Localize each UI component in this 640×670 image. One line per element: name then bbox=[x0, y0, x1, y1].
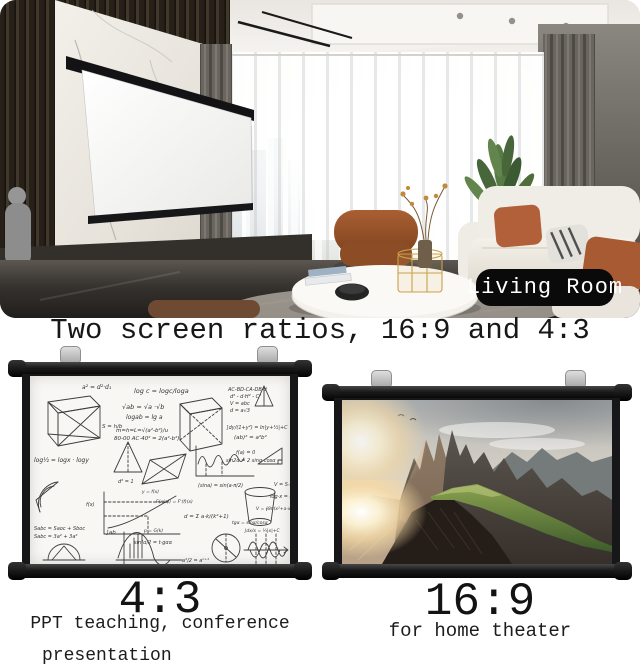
svg-text:V = S·h: V = S·h bbox=[274, 482, 290, 488]
orange-pillow bbox=[493, 204, 542, 248]
caption-16-9-line1: for home theater bbox=[320, 620, 640, 642]
svg-text:∫dx/x = ⅓|x|+C: ∫dx/x = ⅓|x|+C bbox=[244, 528, 281, 534]
caption-4-3-line2: presentation bbox=[0, 646, 320, 666]
svg-text:log c = logc/loga: log c = logc/loga bbox=[134, 387, 189, 395]
svg-text:d = a√3: d = a√3 bbox=[230, 408, 250, 414]
svg-text:f(a) = 0: f(a) = 0 bbox=[236, 450, 255, 456]
svg-text:log·x = u: log·x = u bbox=[270, 494, 290, 500]
svg-text:m=h=L=√(a²-b²)/u: m=h=L=√(a²-b²)/u bbox=[116, 427, 169, 434]
caption-4-3-line1: PPT teaching, conference bbox=[0, 614, 320, 634]
svg-text:(ab)² = a²b²: (ab)² = a²b² bbox=[234, 434, 268, 441]
svg-text:sin2α = 2 sinα·cosα: sin2α = 2 sinα·cosα bbox=[226, 458, 276, 464]
svg-text:tgα = sinα/cosα: tgα = sinα/cosα bbox=[232, 520, 268, 526]
doodle-circle bbox=[212, 534, 240, 562]
wall-bracket-icon bbox=[371, 370, 392, 387]
svg-text:∫ab: ∫ab bbox=[106, 530, 116, 536]
doodle-triangle bbox=[114, 442, 142, 472]
svg-text:V = abc: V = abc bbox=[230, 401, 250, 407]
doodle-semicircle bbox=[43, 544, 85, 560]
svg-text:∫dy/(1+y²) = ln|y+½|+C: ∫dy/(1+y²) = ln|y+½|+C bbox=[226, 424, 288, 431]
doodle-parallelogram bbox=[142, 454, 186, 484]
svg-text:y = f(x): y = f(x) bbox=[141, 489, 159, 495]
living-room-badge-label: Living Room bbox=[467, 275, 623, 300]
wall-bracket-icon bbox=[257, 346, 278, 363]
svg-text:d² - d·H² - C²: d² - d·H² - C² bbox=[230, 394, 261, 400]
living-room-badge: Living Room bbox=[476, 269, 614, 306]
svg-text:p = G(k): p = G(k) bbox=[143, 528, 163, 534]
headline: Two screen ratios, 16:9 and 4:3 bbox=[0, 314, 640, 347]
doodle-axes-curve bbox=[104, 492, 180, 534]
doodle-cuboid-2 bbox=[180, 398, 222, 451]
svg-text:Sabc = 3a² + 3a²: Sabc = 3a² + 3a² bbox=[34, 534, 77, 540]
doodle-cuboid bbox=[48, 396, 100, 446]
svg-text:V = ∮8π(x²+a·x⁴): V = ∮8π(x²+a·x⁴) bbox=[256, 506, 290, 512]
svg-text:F(x(a)) = F'(f)(x): F(x(a)) = F'(f)(x) bbox=[156, 499, 193, 505]
svg-text:(sina) = sin(a·π/2): (sina) = sin(a·π/2) bbox=[198, 483, 243, 489]
doodle-parabola bbox=[116, 532, 182, 564]
svg-text:d² = 1: d² = 1 bbox=[118, 479, 134, 485]
mountain-landscape bbox=[342, 400, 612, 564]
wall-bracket-icon bbox=[60, 346, 81, 363]
math-doodles: a² = d²·d₁ log c = logc/loga √ab = √a ·√… bbox=[30, 376, 290, 564]
svg-text:logab = lg a: logab = lg a bbox=[126, 414, 163, 421]
svg-text:√ab = √a ·√b: √ab = √a ·√b bbox=[122, 403, 164, 411]
svg-text:log½ = logx · logy: log½ = logx · logy bbox=[34, 457, 89, 464]
svg-text:Sabc = Saoc + Sboc: Sabc = Saoc + Sboc bbox=[34, 526, 85, 532]
doodle-double-sine bbox=[244, 534, 288, 564]
svg-text:a² = d²·d₁: a² = d²·d₁ bbox=[82, 384, 112, 391]
screen-4-3-whiteboard: a² = d²·d₁ log c = logc/loga √ab = √a ·√… bbox=[30, 376, 290, 564]
product-collage: Living Room Two screen ratios, 16:9 and … bbox=[0, 0, 640, 670]
svg-text:sin²α/2 = t·gαα: sin²α/2 = t·gαα bbox=[134, 540, 173, 546]
svg-text:d = Σ a·k/(k²+1): d = Σ a·k/(k²+1) bbox=[184, 513, 229, 520]
doodle-fan bbox=[36, 482, 58, 512]
svg-text:f(x): f(x) bbox=[86, 502, 95, 508]
living-room-photo: Living Room bbox=[0, 0, 640, 318]
wall-bracket-icon bbox=[565, 370, 586, 387]
svg-text:80-00 AC·40² = 2(a²-b²): 80-00 AC·40² = 2(a²-b²) bbox=[114, 435, 179, 442]
screen-16-9-mountain bbox=[342, 400, 612, 564]
